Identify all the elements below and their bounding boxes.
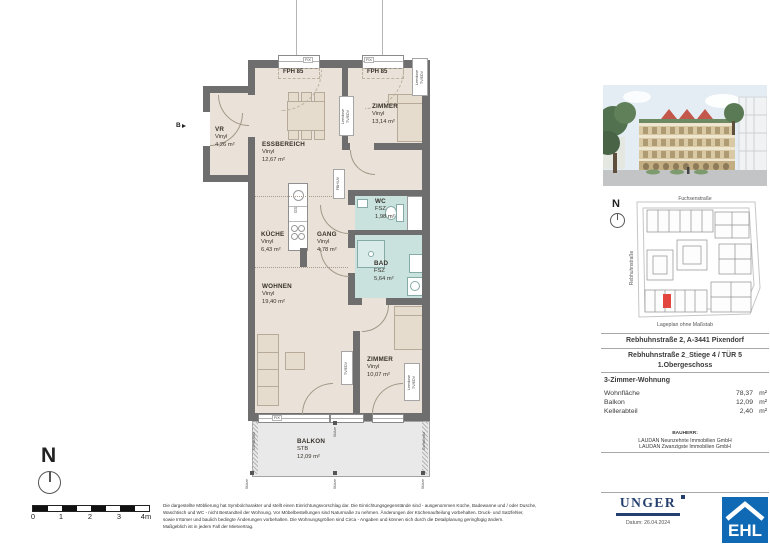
coffee-table	[285, 352, 305, 370]
door-opening	[248, 95, 255, 137]
buildings	[645, 210, 751, 312]
privacy-screen-label: Sichtschutz	[423, 432, 427, 450]
dimension-line	[382, 0, 383, 57]
wc-sink	[357, 199, 368, 208]
room-label-zimmer-2: ZIMMERVinyl10,07 m²	[367, 356, 393, 379]
divider	[601, 372, 769, 373]
door-opening	[348, 205, 355, 230]
outlet-label: Leerdose	[408, 375, 412, 390]
disclaimer-text: Die dargestellte Möblierung hat Symbolch…	[163, 503, 536, 531]
floor-line: 1.Obergeschoss	[601, 362, 769, 369]
outlet-label: TV/EDV	[413, 376, 417, 389]
wall	[203, 175, 255, 182]
street-label-top: Fuchsenstraße	[678, 196, 712, 202]
window-glass	[279, 61, 319, 62]
floorplan-sheet: GS	[0, 0, 770, 544]
bauherr-heading: BAUHERR:	[601, 431, 769, 436]
street	[603, 170, 767, 186]
column-label: Stütze	[422, 479, 426, 489]
scale-tick: 3	[117, 512, 121, 521]
siteplan-caption: Lageplan ohne Maßstab	[601, 322, 769, 328]
chair	[314, 92, 325, 102]
column	[421, 471, 425, 475]
washer-door	[410, 281, 420, 291]
column-label: Stütze	[246, 479, 250, 489]
stove-burner	[298, 225, 305, 232]
window	[278, 55, 320, 69]
pillow	[398, 95, 423, 104]
floor-heating-label: FBH/UV	[337, 177, 341, 190]
scale-segment	[135, 506, 150, 511]
street-label-left: Rebhuhnstraße	[629, 251, 635, 286]
area-label: Wohnfläche	[604, 390, 723, 397]
shower-drain	[368, 251, 374, 257]
bauherr-line: LAUDAN Neunzehnte Immobilien GmbH	[601, 438, 769, 444]
window	[258, 414, 330, 423]
scale-tick: 4m	[141, 512, 151, 521]
section-marker-arrow-icon	[182, 124, 186, 128]
area-label: Balkon	[604, 399, 723, 406]
sofa	[257, 334, 279, 406]
unit-line: Rebhuhnstraße 2_Stiege 4 / TÜR 5	[601, 352, 769, 359]
divider	[601, 348, 769, 349]
address-line: Rebhuhnstraße 2, A-3441 Pixendorf	[601, 337, 769, 344]
area-label: Kellerabteil	[604, 408, 723, 415]
section-marker-label: B	[176, 122, 181, 129]
wall	[348, 190, 422, 196]
disclaimer-line: Die dargestellte Möblierung hat Symbolch…	[163, 503, 536, 510]
outlet-label: TV/EDV	[421, 71, 425, 84]
wall	[203, 86, 255, 93]
pillow	[395, 307, 422, 316]
tv-data-outlet-box: Leerdose TV/EDV	[339, 96, 354, 136]
disclaimer-line: sowie Irrtümer und baulich bedingte Ände…	[163, 517, 536, 524]
column	[333, 471, 337, 475]
openplan-separator	[255, 196, 342, 197]
door-opening	[350, 143, 374, 150]
building-rendering	[603, 85, 767, 186]
divider	[601, 333, 769, 334]
outlet-label: TV/EDV	[345, 362, 349, 375]
privacy-screen-label: Sichtschutz	[253, 432, 257, 450]
bauherr-line: LAUDAN Zwanzigste Immobilien GmbH	[601, 444, 769, 450]
fix-window-label: FIX	[364, 57, 374, 63]
area-unit: m²	[753, 408, 767, 415]
disclaimer-line: Maßgeblich ist in jedem Fall der Mietver…	[163, 524, 536, 531]
wall	[300, 248, 307, 267]
unger-logo: UNGER Datum: 26.04.2024	[603, 494, 693, 526]
column-label: Stütze	[334, 479, 338, 489]
door-opening	[203, 112, 210, 146]
area-value: 2,40	[723, 408, 753, 415]
divider	[601, 452, 769, 453]
scale-segment	[77, 506, 92, 511]
outlet-label: TV/EDV	[347, 110, 351, 123]
area-row-wohnflaeche: Wohnfläche 78,37 m²	[604, 390, 767, 397]
scale-segment	[48, 506, 63, 511]
column	[333, 421, 337, 425]
area-unit: m²	[753, 399, 767, 406]
column	[250, 471, 254, 475]
chair	[288, 130, 299, 140]
dishwasher-label: GS	[294, 207, 298, 213]
scale-segment	[106, 506, 121, 511]
sofa-cushion	[258, 386, 278, 387]
wall	[353, 331, 360, 413]
window-glass	[331, 418, 363, 419]
scale-tick: 0	[31, 512, 35, 521]
room-label-wc: WCFSZ1,98 m²	[375, 198, 395, 221]
dimension-line	[296, 0, 297, 57]
chair	[314, 130, 325, 140]
area-value: 78,37	[723, 390, 753, 397]
disclaimer-line: Waschtisch und WC - nicht Bestandteil de…	[163, 510, 536, 517]
balcony-door	[372, 414, 404, 423]
area-row-kellerabteil: Kellerabteil 2,40 m²	[604, 408, 767, 415]
floor-heating-box: FBH/UV	[333, 169, 345, 199]
ehl-logo: EHL	[722, 497, 768, 543]
toilet-tank	[396, 204, 404, 222]
stove-burner	[298, 233, 305, 240]
scale-segment	[62, 506, 77, 511]
door-opening	[348, 248, 355, 273]
window-type-label: FPH 85	[283, 69, 303, 75]
counter-divider	[289, 221, 307, 222]
tv-data-outlet-box: Leerdose TV/EDV	[412, 58, 428, 96]
scale-bar	[32, 505, 150, 512]
north-label: N	[41, 444, 56, 468]
area-value: 12,09	[723, 399, 753, 406]
sofa-cushion	[258, 369, 278, 370]
window-glass	[259, 418, 329, 419]
section-marker: B	[176, 122, 186, 129]
sofa-cushion	[258, 352, 278, 353]
siteplan: Fuchsenstraße Rebhuhnstraße	[603, 192, 767, 320]
fix-window-label: FIX	[272, 415, 282, 421]
area-row-balkon: Balkon 12,09 m²	[604, 399, 767, 406]
scale-segment	[33, 506, 48, 511]
date-line: Datum: 26.04.2024	[603, 520, 693, 526]
room-label-essbereich: ESSBEREICHVinyl12,67 m²	[262, 141, 305, 164]
room-label-vr: VRVinyl4,26 m²	[215, 126, 235, 149]
stove-burner	[291, 225, 298, 232]
door-opening	[362, 298, 386, 305]
unger-logo-text: UNGER	[620, 495, 676, 510]
ehl-logo-text: EHL	[728, 521, 762, 540]
balcony-floor	[252, 421, 430, 477]
scale-tick: 2	[88, 512, 92, 521]
area-unit: m²	[753, 390, 767, 397]
scale-segment	[120, 506, 135, 511]
divider	[601, 492, 769, 493]
outlet-label: Leerdose	[416, 70, 420, 85]
chair	[301, 130, 312, 140]
scale-tick: 1	[59, 512, 63, 521]
kitchen-counter	[288, 183, 308, 251]
wall	[422, 60, 430, 421]
room-label-balkon: BALKONSTB12,09 m²	[297, 438, 325, 461]
window-type-label: FPH 85	[367, 69, 387, 75]
unger-logo-bar	[616, 513, 680, 516]
room-label-gang: GANGVinyl4,78 m²	[317, 231, 337, 254]
north-compass-needle	[49, 472, 51, 482]
bed	[394, 306, 423, 350]
unger-logo-mark	[681, 495, 685, 499]
stove-burner	[291, 233, 298, 240]
wall	[355, 230, 422, 235]
fix-window-label: FIX	[303, 57, 313, 63]
scale-segment	[91, 506, 106, 511]
room-label-zimmer-1: ZIMMERVinyl13,14 m²	[372, 103, 398, 126]
room-label-bad: BADFSZ5,64 m²	[374, 260, 394, 283]
bed	[397, 94, 424, 142]
tv-data-outlet-box: TV/EDV	[341, 351, 353, 385]
column-label: Stütze	[334, 427, 338, 437]
room-label-kueche: KÜCHEVinyl6,43 m²	[261, 231, 284, 254]
highlighted-unit	[663, 294, 671, 308]
apartment-type: 3-Zimmer-Wohnung	[604, 377, 670, 384]
window-glass	[373, 418, 403, 419]
tv-data-outlet-box: Leerdose TV/EDV	[404, 363, 420, 401]
floorplan: GS	[0, 0, 600, 544]
room-label-wohnen: WOHNENVinyl19,40 m²	[262, 283, 292, 306]
